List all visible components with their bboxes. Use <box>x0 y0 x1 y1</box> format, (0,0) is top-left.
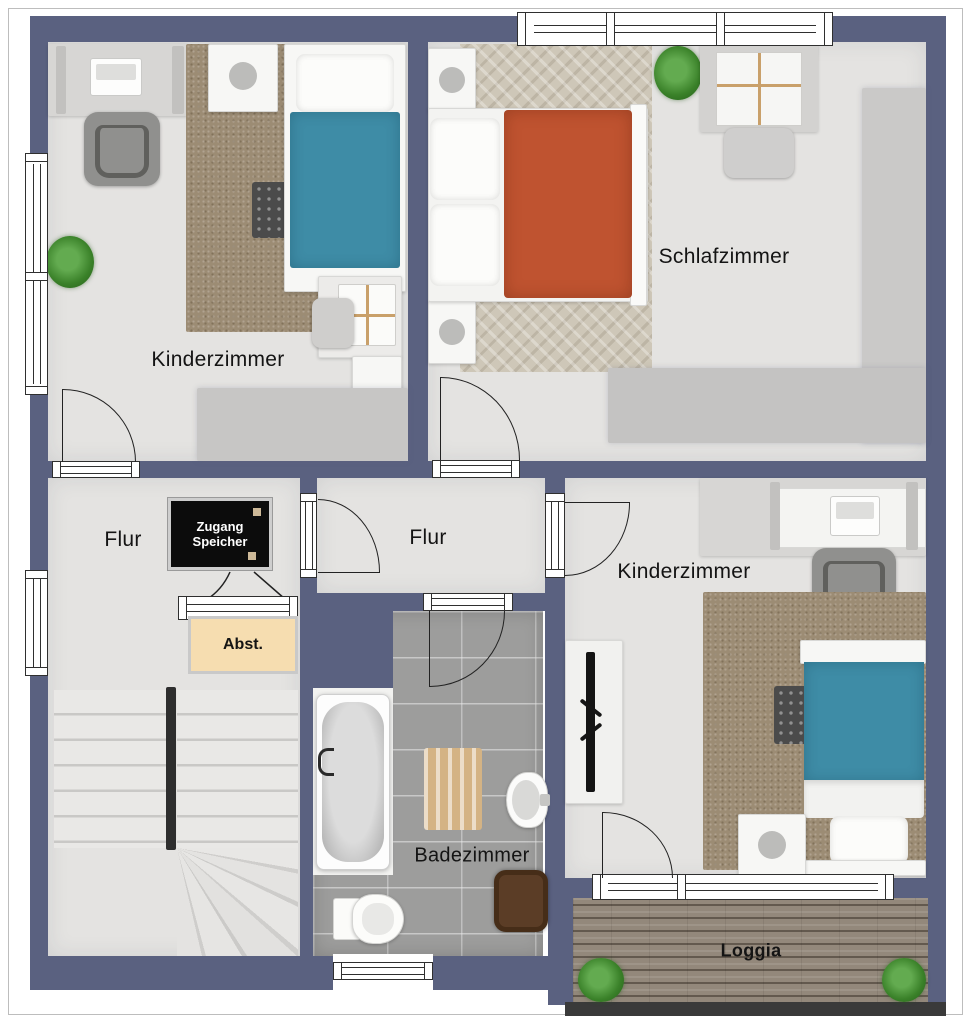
storage-label: Abst. <box>223 636 263 654</box>
room-label-badezimmer: Badezimmer <box>414 845 529 868</box>
nightstand-kz2-lamp <box>758 831 786 859</box>
bath-mat <box>424 748 482 830</box>
attic-box-marker-top <box>253 508 261 516</box>
door-cap <box>300 569 317 578</box>
door-flur-left-threshold <box>300 493 317 578</box>
door-cap <box>511 460 520 478</box>
laptop-kz2-keyboard <box>836 502 874 519</box>
bed-kz2-sheet-fold <box>804 780 924 818</box>
plant-loggia-right <box>882 958 926 1002</box>
bathtub-faucet <box>318 748 334 776</box>
door-kz2-lines <box>551 497 559 573</box>
window-flur-left <box>25 570 48 676</box>
door-cap <box>131 461 140 478</box>
door-sz-threshold <box>432 460 520 478</box>
nightstand-kz1-lamp <box>229 62 257 90</box>
wall-kz1-sz <box>408 16 428 462</box>
window-cap <box>716 12 725 46</box>
stairs-flight-left <box>54 690 166 848</box>
loggia-edge-strip <box>565 1002 946 1016</box>
window-cap <box>677 874 686 900</box>
door-cap <box>432 460 441 478</box>
desk-kz2-rail-right <box>906 482 918 550</box>
window-cap <box>424 962 433 980</box>
window-kz1-left <box>25 153 48 395</box>
window-cap <box>25 570 48 579</box>
bed-sz-footboard <box>630 104 647 306</box>
window-sz-glass <box>534 25 817 33</box>
toilet-seat <box>362 903 394 935</box>
door-flur-left-lines <box>305 497 313 573</box>
door-bad-threshold <box>423 593 513 611</box>
plant-loggia-left <box>578 958 624 1002</box>
room-label-flur-middle: Flur <box>409 526 446 550</box>
stairs-flight-right <box>177 690 298 848</box>
door-cap <box>504 593 513 611</box>
door-sz-lines <box>437 465 514 473</box>
door-cap <box>423 593 432 611</box>
window-cap <box>885 874 894 900</box>
room-label-kinderzimmer-1: Kinderzimmer <box>151 348 284 372</box>
stairs-winder-steps <box>177 848 298 956</box>
desk-kz2-rail-left <box>770 482 780 550</box>
plant-sz <box>654 46 702 100</box>
room-label-loggia: Loggia <box>721 941 782 962</box>
window-kz2-glass <box>608 883 878 891</box>
door-cap <box>545 569 565 578</box>
stairs-center-rail <box>166 687 176 850</box>
closet-sz-horizontal <box>608 368 926 443</box>
laptop-kz1 <box>90 58 142 96</box>
bath-rug <box>494 870 548 932</box>
window-cap <box>333 962 342 980</box>
room-label-schlafzimmer: Schlafzimmer <box>659 245 790 269</box>
door-cap <box>545 493 565 502</box>
door-cap <box>300 493 317 502</box>
room-label-flur-left: Flur <box>104 528 141 552</box>
bed-kz1-pillow <box>296 54 394 112</box>
desk2-chair-kz1 <box>312 298 354 348</box>
door-bad-lines <box>428 598 507 606</box>
shelf-kz1 <box>352 356 402 390</box>
window-schlafzimmer-top <box>517 12 833 46</box>
window-cap <box>25 153 48 162</box>
window-flur-left-glass <box>33 575 41 671</box>
wall-bath-block-over <box>300 611 393 688</box>
wall-bottom-left <box>30 956 565 990</box>
attic-hatch-cap-left <box>178 596 187 620</box>
attic-access-box: Zugang Speicher <box>168 498 272 570</box>
window-bad-glass <box>339 967 427 975</box>
door-kz2-threshold <box>545 493 565 578</box>
wall-right <box>926 16 946 1016</box>
attic-access-label: Zugang Speicher <box>181 519 259 549</box>
nightstand-sz-bottom-lamp <box>439 319 465 345</box>
door-kz1-lines <box>57 466 134 474</box>
bed-sz-duvet <box>504 110 632 298</box>
window-cap <box>606 12 615 46</box>
storage-box: Abst. <box>188 616 298 674</box>
window-cap <box>25 386 48 395</box>
door-flur-left-leaf <box>318 572 380 573</box>
tv-screen-kz2 <box>586 652 595 792</box>
closet-kz1 <box>197 388 408 461</box>
floor-plan: Zugang Speicher Abst. <box>0 0 971 1023</box>
desk-sz-top <box>716 52 802 126</box>
window-cap <box>517 12 526 46</box>
desk-kz1-rail-left <box>56 46 66 114</box>
bed-kz2-pillow <box>830 816 908 864</box>
room-label-kinderzimmer-2: Kinderzimmer <box>617 560 750 584</box>
desk-chair-sz <box>724 128 794 178</box>
attic-hatch-lines <box>185 604 291 612</box>
laptop-kz2 <box>830 496 880 536</box>
bed-sz-pillow-2 <box>430 204 500 286</box>
desk-chair-kz1 <box>84 112 160 186</box>
nightstand-sz-top-lamp <box>439 67 465 93</box>
window-badezimmer-bottom <box>333 962 433 980</box>
plant-kz1 <box>46 236 94 288</box>
laptop-kz1-keyboard <box>96 64 136 80</box>
desk-kz1-rail-right <box>172 46 184 114</box>
door-kz1-threshold <box>52 461 140 478</box>
bed-sz-pillow-1 <box>430 118 500 200</box>
wall-loggia-left <box>548 878 573 1005</box>
window-cap <box>592 874 601 900</box>
bed-kz2-blanket <box>804 662 924 782</box>
sink-tap <box>540 794 550 806</box>
window-cap <box>25 272 48 281</box>
window-cap <box>824 12 833 46</box>
desk-chair-kz1-seat <box>95 125 149 178</box>
sink-basin <box>512 780 540 820</box>
bathtub-basin <box>322 702 384 862</box>
door-cap <box>52 461 61 478</box>
attic-box-marker-bottom <box>248 552 256 560</box>
bed-kz1-blanket <box>290 112 400 268</box>
bed-kz2-headboard <box>800 640 926 664</box>
window-cap <box>25 667 48 676</box>
